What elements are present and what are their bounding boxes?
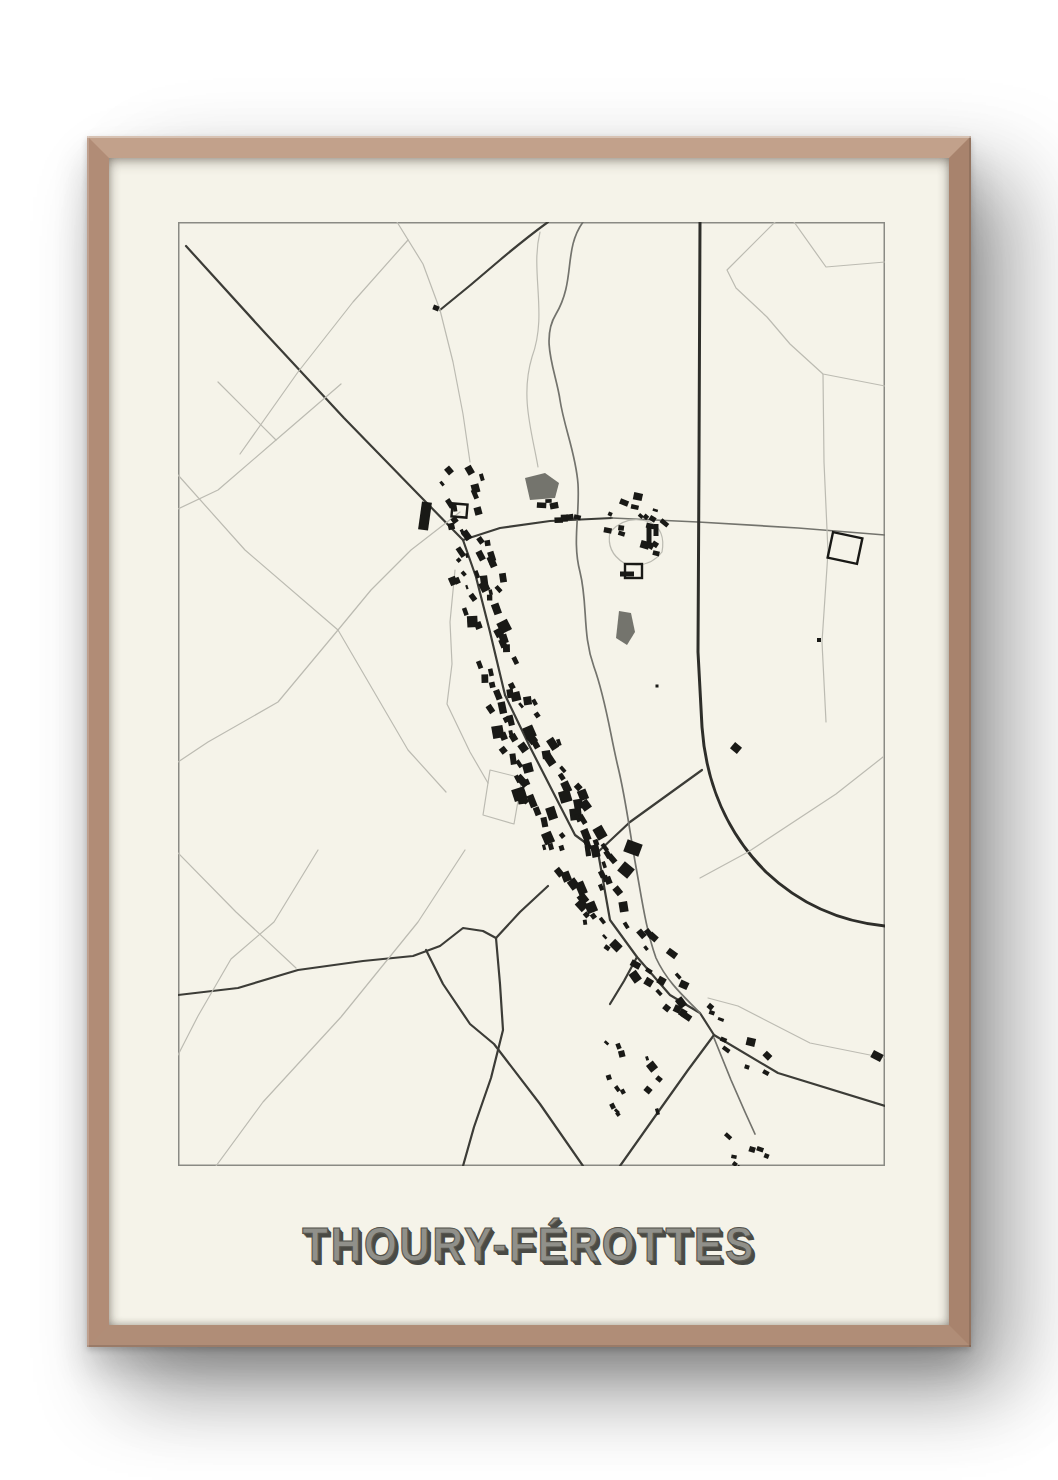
poster-title: THOURY-FÉROTTES — [159, 1221, 898, 1269]
poster-frame: THOURY-FÉROTTES — [87, 136, 971, 1347]
wall: THOURY-FÉROTTES — [0, 0, 1058, 1480]
map-svg — [178, 222, 885, 1166]
poster-paper: THOURY-FÉROTTES — [109, 158, 949, 1325]
